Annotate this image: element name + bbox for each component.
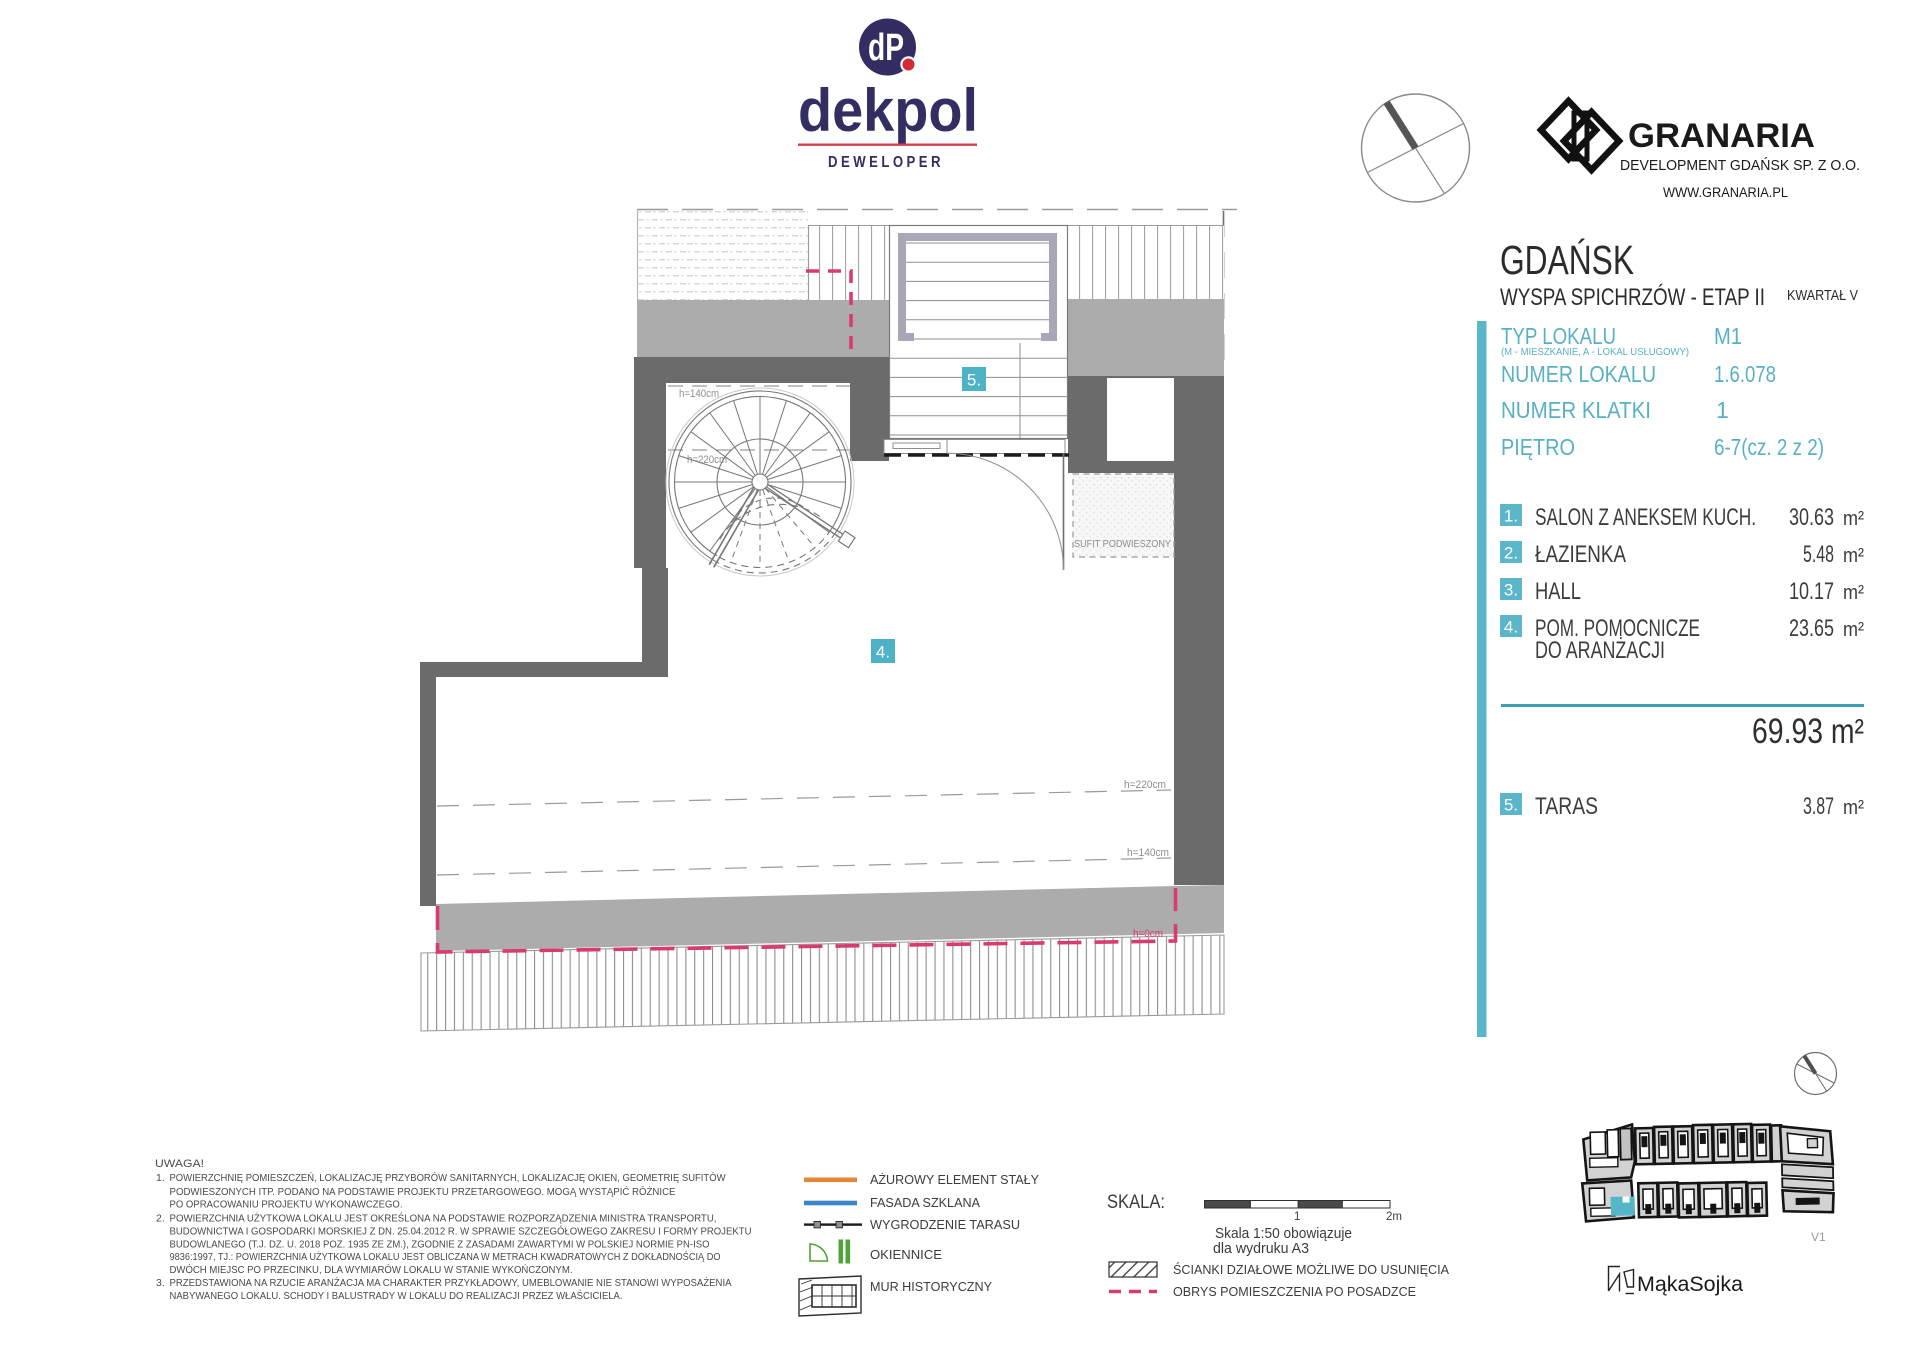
svg-text:m²: m² <box>1843 508 1864 530</box>
svg-text:WYSPA SPICHRZÓW - ETAP II: WYSPA SPICHRZÓW - ETAP II <box>1500 284 1765 311</box>
svg-text:DEWELOPER: DEWELOPER <box>828 154 944 171</box>
svg-text:5.: 5. <box>967 371 981 390</box>
svg-text:10.17: 10.17 <box>1789 578 1834 605</box>
svg-text:3.87: 3.87 <box>1803 793 1834 820</box>
svg-text:OKIENNICE: OKIENNICE <box>870 1248 942 1262</box>
svg-text:OBRYS POMIESZCZENIA PO POSADZC: OBRYS POMIESZCZENIA PO POSADZCE <box>1173 1285 1416 1299</box>
svg-text:POWIERZCHNIA UŻYTKOWA LOKALU J: POWIERZCHNIA UŻYTKOWA LOKALU JEST OKREŚL… <box>170 1211 717 1224</box>
svg-text:3.: 3. <box>1504 581 1518 600</box>
svg-text:69.93 m²: 69.93 m² <box>1752 712 1864 751</box>
svg-text:5.: 5. <box>1504 796 1518 815</box>
svg-text:dla wydruku A3: dla wydruku A3 <box>1213 1240 1309 1257</box>
svg-text:V1: V1 <box>1811 1230 1826 1244</box>
svg-text:NUMER KLATKI: NUMER KLATKI <box>1501 397 1651 423</box>
svg-text:HALL: HALL <box>1535 578 1581 605</box>
svg-text:GRANARIA: GRANARIA <box>1628 117 1815 155</box>
svg-text:NABYWANEGO LOKALU. SCHODY I BA: NABYWANEGO LOKALU. SCHODY I BALUSTRADY W… <box>170 1289 623 1302</box>
svg-text:AŻUROWY ELEMENT STAŁY: AŻUROWY ELEMENT STAŁY <box>870 1173 1040 1187</box>
svg-text:4.: 4. <box>1504 618 1518 637</box>
svg-text:KWARTAŁ V: KWARTAŁ V <box>1787 288 1858 304</box>
svg-text:SKALA:: SKALA: <box>1107 1191 1165 1213</box>
svg-text:(M - MIESZKANIE, A - LOKAL USŁ: (M - MIESZKANIE, A - LOKAL USŁUGOWY) <box>1501 347 1689 358</box>
svg-text:m²: m² <box>1843 797 1864 819</box>
svg-text:DO ARANŻACJI: DO ARANŻACJI <box>1535 637 1665 664</box>
svg-text:2m: 2m <box>1386 1211 1402 1223</box>
svg-text:1: 1 <box>1294 1211 1300 1223</box>
svg-text:DEVELOPMENT GDAŃSK SP. Z O.O.: DEVELOPMENT GDAŃSK SP. Z O.O. <box>1620 157 1860 174</box>
svg-text:5.48: 5.48 <box>1803 541 1834 568</box>
svg-text:WWW.GRANARIA.PL: WWW.GRANARIA.PL <box>1663 185 1788 200</box>
svg-text:DWÓCH MIEJSC PO PRZECINKU, DLA: DWÓCH MIEJSC PO PRZECINKU, DLA WYMIARÓW … <box>170 1263 573 1276</box>
svg-text:TARAS: TARAS <box>1535 793 1598 820</box>
svg-text:2.: 2. <box>156 1212 165 1224</box>
svg-text:GDAŃSK: GDAŃSK <box>1500 237 1634 283</box>
svg-text:PIĘTRO: PIĘTRO <box>1501 434 1575 460</box>
svg-text:1.: 1. <box>156 1172 165 1184</box>
svg-text:UWAGA!: UWAGA! <box>155 1158 204 1170</box>
svg-text:BUDOWNICTWA I GOSPODARKI MORSK: BUDOWNICTWA I GOSPODARKI MORSKIEJ Z DN. … <box>170 1224 752 1237</box>
svg-text:POWIERZCHNIĘ POMIESZCZEŃ, LOKA: POWIERZCHNIĘ POMIESZCZEŃ, LOKALIZACJĘ PR… <box>170 1171 726 1184</box>
svg-text:m²: m² <box>1843 619 1864 641</box>
svg-text:BUDOWLANEGO (T.J. DZ. U. 2018: BUDOWLANEGO (T.J. DZ. U. 2018 POZ. 1935 … <box>170 1238 710 1250</box>
svg-text:2.: 2. <box>1504 544 1518 563</box>
svg-text:NUMER LOKALU: NUMER LOKALU <box>1501 361 1656 387</box>
svg-text:ŁAZIENKA: ŁAZIENKA <box>1535 541 1626 568</box>
svg-text:30.63: 30.63 <box>1789 504 1834 531</box>
svg-text:WYGRODZENIE TARASU: WYGRODZENIE TARASU <box>870 1218 1020 1232</box>
svg-text:9836:1997, TJ.: POWIERZCHNIA U: 9836:1997, TJ.: POWIERZCHNIA UŻYTKOWA LO… <box>170 1250 721 1263</box>
svg-text:h=140cm: h=140cm <box>679 388 719 400</box>
svg-text:M1: M1 <box>1714 323 1742 349</box>
svg-text:dekpol: dekpol <box>798 77 978 144</box>
svg-text:MUR HISTORYCZNY: MUR HISTORYCZNY <box>870 1280 993 1294</box>
svg-text:23.65: 23.65 <box>1789 615 1834 642</box>
svg-text:h=0cm: h=0cm <box>1133 928 1163 940</box>
svg-text:PO OPRACOWANIU PROJEKTU WYKONA: PO OPRACOWANIU PROJEKTU WYKONAWCZEGO. <box>170 1199 403 1211</box>
svg-text:PODWIESZONYCH ITP. PODANO NA: PODWIESZONYCH ITP. PODANO NA PODSTAWIE P… <box>170 1185 676 1198</box>
svg-text:SALON Z ANEKSEM KUCH.: SALON Z ANEKSEM KUCH. <box>1535 504 1756 531</box>
svg-text:3.: 3. <box>156 1277 165 1289</box>
svg-text:1.: 1. <box>1504 507 1518 526</box>
svg-text:MąkaSojka: MąkaSojka <box>1637 1273 1743 1296</box>
svg-text:m²: m² <box>1843 582 1864 604</box>
svg-text:6-7(cz. 2 z 2): 6-7(cz. 2 z 2) <box>1714 434 1824 460</box>
svg-text:SUFIT PODWIESZONY: SUFIT PODWIESZONY <box>1074 539 1171 550</box>
svg-text:h=140cm: h=140cm <box>1127 847 1169 859</box>
svg-text:FASADA SZKLANA: FASADA SZKLANA <box>870 1196 981 1210</box>
svg-text:4.: 4. <box>876 643 890 662</box>
svg-text:1.6.078: 1.6.078 <box>1714 361 1776 387</box>
svg-text:ŚCIANKI DZIAŁOWE MOŻLIWE DO US: ŚCIANKI DZIAŁOWE MOŻLIWE DO USUNIĘCIA <box>1173 1262 1450 1277</box>
svg-text:h=220cm: h=220cm <box>1124 779 1166 791</box>
svg-text:m²: m² <box>1843 545 1864 567</box>
svg-text:1: 1 <box>1716 397 1729 423</box>
svg-text:PRZEDSTAWIONA NA RZUCIE ARANŻA: PRZEDSTAWIONA NA RZUCIE ARANŻACJA MA CHA… <box>170 1276 732 1289</box>
svg-text:TYP LOKALU: TYP LOKALU <box>1501 323 1616 349</box>
svg-text:dP: dP <box>868 27 904 69</box>
